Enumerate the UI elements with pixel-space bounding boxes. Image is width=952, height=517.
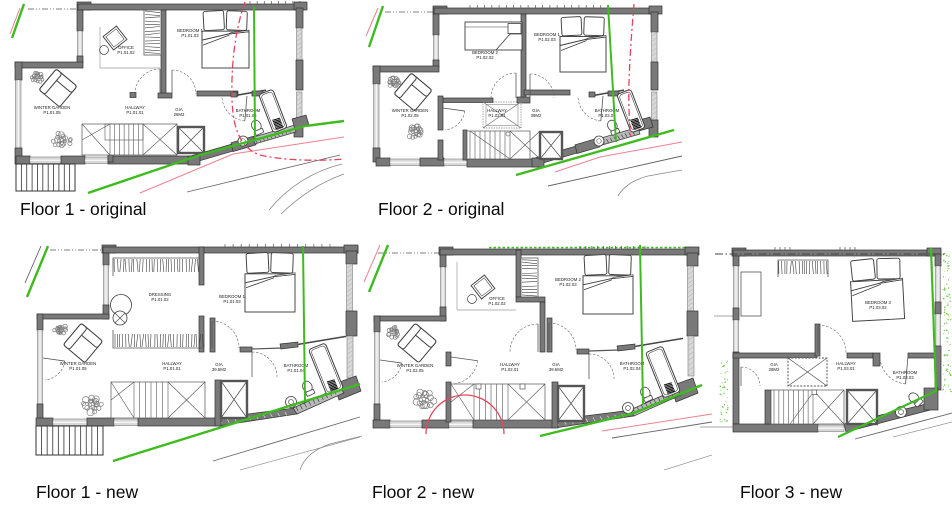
svg-text:Floor 3 - new: Floor 3 - new [740, 482, 842, 502]
svg-text:P1.01.05: P1.01.05 [43, 110, 61, 115]
svg-text:P1.02.01: P1.02.01 [488, 113, 506, 118]
svg-text:P1.02.05: P1.02.05 [406, 368, 424, 373]
svg-text:Floor 1 - new: Floor 1 - new [36, 482, 138, 502]
svg-text:P1.01.04: P1.01.04 [287, 368, 305, 373]
svg-text:P1.03.02: P1.03.02 [869, 305, 887, 310]
svg-text:P1.02.05: P1.02.05 [401, 113, 419, 118]
svg-text:P1.01.01: P1.01.01 [126, 110, 144, 115]
svg-text:Floor 1 - original: Floor 1 - original [20, 199, 146, 219]
svg-text:39M2: 39M2 [531, 113, 542, 118]
svg-text:Floor 2 - original: Floor 2 - original [378, 199, 504, 219]
svg-text:P1.01.03: P1.01.03 [223, 299, 241, 304]
svg-text:P1.01.02: P1.01.02 [117, 50, 135, 55]
svg-text:P1.01.01: P1.01.01 [163, 366, 181, 371]
svg-text:P1.01.02: P1.01.02 [151, 297, 169, 302]
svg-text:39.5M2: 39.5M2 [549, 367, 564, 372]
svg-text:28M2: 28M2 [174, 112, 185, 117]
svg-text:Floor 2 - new: Floor 2 - new [372, 482, 474, 502]
svg-text:P1.03.03: P1.03.03 [896, 375, 914, 380]
svg-text:P1.01.03: P1.01.03 [181, 33, 199, 38]
svg-text:P1.01.05: P1.01.05 [69, 366, 87, 371]
svg-text:P1.02.03: P1.02.03 [559, 282, 577, 287]
svg-text:28M2: 28M2 [769, 367, 780, 372]
svg-text:P1.02.03: P1.02.03 [538, 37, 556, 42]
svg-text:P1.02.04: P1.02.04 [623, 366, 641, 371]
svg-text:P1.03.01: P1.03.01 [837, 366, 855, 371]
svg-text:39.5M2: 39.5M2 [212, 367, 227, 372]
svg-text:P1.02.02: P1.02.02 [476, 55, 494, 60]
svg-text:P1.02.02: P1.02.02 [488, 301, 506, 306]
svg-text:P1.02.01: P1.02.01 [501, 367, 519, 372]
